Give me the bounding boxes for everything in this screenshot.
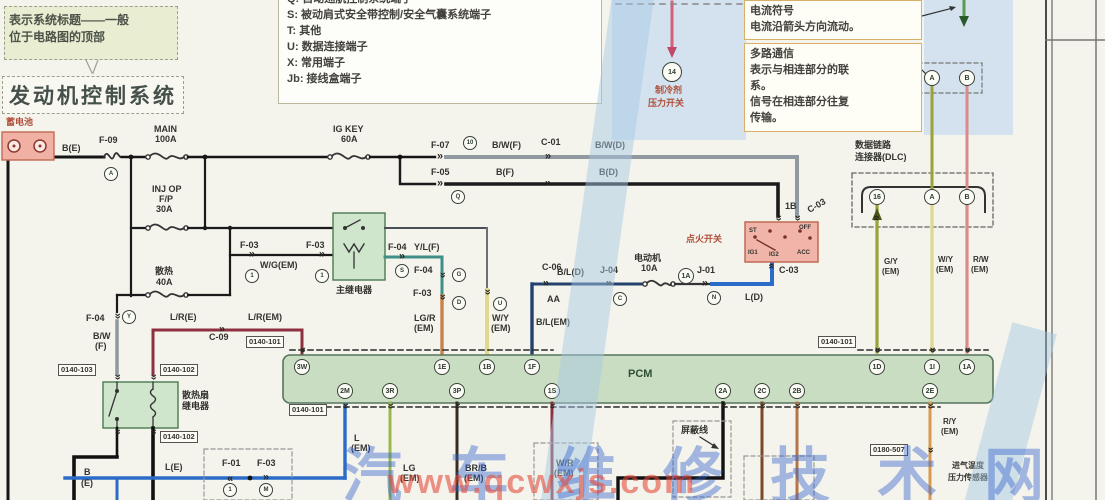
wire-label: F-09	[99, 136, 118, 145]
callout-line: 电流沿箭头方向流动。	[750, 19, 916, 35]
connector-chevron: »	[925, 403, 936, 409]
connector-chevron: »	[872, 215, 883, 221]
connector-chevron: »	[545, 179, 551, 190]
wire-label: L	[354, 434, 360, 443]
wire-label: 压力传感器	[948, 474, 988, 482]
terminal-circle: 1A	[959, 359, 975, 375]
wire-label: (EM)	[971, 266, 988, 274]
wire-label: B(D)	[599, 168, 618, 177]
wire-label: W/R	[556, 459, 574, 468]
wire-label: J-04	[600, 266, 618, 275]
terminal-circle: 1	[315, 269, 329, 283]
legend-line: U: 数据连接端子	[287, 39, 593, 55]
wire-label: B/W	[93, 332, 111, 341]
wire-label: 继电器	[182, 402, 209, 411]
wire-label: AA	[547, 295, 560, 304]
wire-label: (EM)	[554, 469, 574, 478]
terminal-circle: 1	[245, 269, 259, 283]
terminal-circle: 2M	[337, 383, 353, 399]
wire-label: (F)	[95, 342, 107, 351]
wire-label: B/L(EM)	[536, 318, 570, 327]
wire-label: ST	[749, 228, 757, 234]
wire-label: 散热扇	[182, 391, 209, 400]
wire-label: ACC	[797, 250, 810, 256]
terminal-circle: M	[259, 483, 273, 497]
terminal-circle: A	[924, 70, 940, 86]
connector-chevron: »	[249, 250, 255, 261]
connector-chevron: »	[263, 473, 269, 484]
connector-chevron: »	[297, 347, 308, 353]
wire-label: 制冷剂	[655, 86, 682, 95]
wire-label: W/G(EM)	[260, 261, 298, 270]
wire-label: 60A	[341, 135, 358, 144]
wire-label: LG	[403, 464, 416, 473]
callout-system-title-note: 表示系统标题——一般位于电路图的顶部	[4, 6, 178, 60]
terminal-circle: A	[924, 189, 940, 205]
connector-chevron: »	[962, 347, 973, 353]
wire-label: IG1	[748, 250, 758, 256]
callout-line: 电流符号	[750, 3, 916, 19]
terminal-circle: 2B	[789, 383, 805, 399]
terminal-circle: A	[104, 167, 118, 181]
terminal-circle: 1A	[678, 268, 694, 284]
terminal-circle: 10	[463, 136, 477, 150]
wire-label: R/W	[973, 256, 989, 264]
wire-label: B(F)	[496, 168, 514, 177]
wire-label: (EM)	[941, 428, 958, 436]
callout-line: 系。	[750, 78, 916, 94]
callout-line: 多路通信	[750, 46, 916, 62]
connector-chevron: »	[437, 152, 443, 163]
terminal-circle: 2E	[922, 383, 938, 399]
wire-label: IG2	[769, 252, 779, 258]
connector-chevron: »	[545, 152, 551, 163]
wire-label: OFF	[799, 225, 811, 231]
wire-label: (EM)	[936, 266, 953, 274]
connector-chevron: »	[227, 473, 233, 484]
terminal-circle: 16	[869, 189, 885, 205]
wire-label: 40A	[156, 278, 173, 287]
callout-line: 表示系统标题——一般	[9, 12, 173, 29]
connector-chevron: »	[219, 325, 225, 336]
wire-label: 连接器(DLC)	[855, 153, 907, 162]
wire-label: B/W(D)	[595, 141, 625, 150]
wire-label: B/L(D)	[557, 268, 584, 277]
terminal-circle: 1F	[524, 359, 540, 375]
terminal-circle: D	[452, 296, 466, 310]
callout-multiplex: 多路通信表示与相连部分的联系。信号在相连部分往复传输。	[744, 43, 922, 132]
connector-chevron: »	[757, 403, 768, 409]
wire-label: F-04	[414, 266, 433, 275]
connector-chevron: »	[340, 403, 351, 409]
connector-chevron: »	[547, 403, 558, 409]
wire-label: F/P	[159, 195, 173, 204]
connector-chevron: »	[482, 289, 493, 295]
legend-line: S: 被动肩式安全带控制/安全气囊系统端子	[287, 7, 593, 23]
wire-label: (E)	[81, 479, 93, 488]
wire-label: 点火开关	[686, 235, 722, 244]
terminal-circle: 3R	[382, 383, 398, 399]
connector-chevron: »	[792, 403, 803, 409]
connector-chevron: »	[385, 403, 396, 409]
connector-ref-label: 0140-101	[818, 336, 856, 348]
wire-label: 进气温度	[952, 462, 984, 470]
terminal-circle: 1E	[434, 359, 450, 375]
legend-line: Jb: 接线盒端子	[287, 71, 593, 87]
connector-chevron: »	[702, 279, 708, 290]
terminal-circle: 3P	[449, 383, 465, 399]
connector-chevron: »	[437, 272, 448, 278]
terminal-circle: 3W	[294, 359, 310, 375]
wire-label: L(E)	[165, 463, 183, 472]
wire-label: W/Y	[938, 256, 953, 264]
connector-chevron: »	[148, 429, 159, 435]
terminal-circle: B	[959, 70, 975, 86]
terminal-circle: G	[452, 268, 466, 282]
callout-line: 位于电路图的顶部	[9, 29, 173, 46]
wire-label: C-03	[806, 197, 827, 215]
wire-label: B	[84, 468, 91, 477]
wire-label: L/R(EM)	[248, 313, 282, 322]
wire-label: 10A	[641, 264, 658, 273]
wire-label: R/Y	[943, 418, 956, 426]
terminal-circle: Q	[451, 190, 465, 204]
wire-label: C-01	[541, 138, 561, 147]
connector-chevron: »	[773, 215, 784, 221]
connector-ref-label: 0140-102	[160, 431, 198, 443]
connector-chevron: »	[399, 252, 405, 263]
wire-label: BR/B	[465, 464, 487, 473]
wire-label: F-03	[413, 289, 432, 298]
connector-chevron: »	[767, 263, 778, 269]
callout-line: 传输。	[750, 110, 916, 126]
legend-line: Q: 自动巡航控制系统端子	[287, 0, 593, 7]
terminal-circle: 1S	[544, 383, 560, 399]
wire-label: (EM)	[400, 474, 420, 483]
wire-label: B(E)	[62, 144, 81, 153]
wire-label: 1B	[785, 202, 797, 211]
connector-ref-label: 0140-102	[160, 364, 198, 376]
terminal-circle: 2C	[754, 383, 770, 399]
terminal-circle: C	[613, 292, 627, 306]
connector-chevron: »	[872, 347, 883, 353]
wiring-diagram-page: 蓄电池B(E)F-09MAIN100AIG KEY60AINJ OPF/P30A…	[0, 0, 1105, 500]
wire-label: B/W(F)	[492, 141, 521, 150]
wire-label: F-01	[222, 459, 241, 468]
wire-label: IG KEY	[333, 125, 364, 134]
system-title-box: 发动机控制系统	[2, 76, 184, 114]
connector-chevron: »	[112, 313, 123, 319]
wire-label: J-01	[697, 266, 715, 275]
wire-label: INJ OP	[152, 185, 182, 194]
connector-ref-label: 0140-101	[289, 404, 327, 416]
wire-label: (EM)	[464, 474, 484, 483]
terminal-circle: 1I	[924, 359, 940, 375]
terminal-circle: 1	[223, 483, 237, 497]
wire-label: PCM	[628, 369, 652, 380]
wire-label: F-07	[431, 141, 450, 150]
wire-label: (EM)	[351, 444, 371, 453]
wire-label: (EM)	[491, 324, 511, 333]
connector-ref-label: 0140-103	[58, 364, 96, 376]
wire-label: F-05	[431, 168, 450, 177]
wire-label: F-03	[257, 459, 276, 468]
terminal-circle: B	[959, 189, 975, 205]
terminal-circle: 14	[662, 62, 682, 82]
page-title: 发动机控制系统	[9, 80, 177, 110]
terminal-circle: 1D	[869, 359, 885, 375]
connector-chevron: »	[925, 447, 936, 453]
connector-chevron: »	[718, 403, 729, 409]
connector-chevron: »	[437, 294, 448, 300]
wire-label: C-03	[779, 266, 799, 275]
wire-label: 主继电器	[336, 286, 372, 295]
connector-chevron: »	[543, 279, 549, 290]
wire-label: F-04	[86, 314, 105, 323]
connector-chevron: »	[148, 374, 159, 380]
wire-label: 散热	[155, 267, 173, 276]
connector-chevron: »	[112, 374, 123, 380]
wire-label: (EM)	[414, 324, 434, 333]
terminal-circle: N	[707, 291, 721, 305]
callout-line: 信号在相连部分往复	[750, 94, 916, 110]
connector-ref-label: 0140-101	[246, 336, 284, 348]
wire-label: G/Y	[884, 258, 898, 266]
wire-label: 数据链路	[855, 141, 891, 150]
wire-label: 压力开关	[648, 99, 684, 108]
wire-label: Y/L(F)	[414, 243, 440, 252]
connector-chevron: »	[452, 403, 463, 409]
wire-label: L(D)	[745, 293, 763, 302]
terminal-circle: 2A	[715, 383, 731, 399]
connector-chevron: »	[792, 215, 803, 221]
connector-chevron: »	[319, 250, 325, 261]
wire-label: L/R(E)	[170, 313, 197, 322]
callout-current-symbol: 电流符号电流沿箭头方向流动。	[744, 0, 922, 40]
legend-line: X: 常用端子	[287, 55, 593, 71]
wire-label: 屏蔽线	[681, 426, 708, 435]
legend-line: T: 其他	[287, 23, 593, 39]
wire-label: 30A	[156, 205, 173, 214]
terminal-circle: Y	[122, 310, 136, 324]
wire-label: 蓄电池	[6, 118, 33, 127]
wire-label: LG/R	[414, 314, 436, 323]
wire-label: 100A	[155, 135, 177, 144]
connector-ref-label: 0180-507	[870, 444, 908, 456]
connector-chevron: »	[112, 429, 123, 435]
wire-label: (EM)	[882, 268, 899, 276]
connector-chevron: »	[606, 279, 612, 290]
terminal-circle: S	[395, 264, 409, 278]
callout-line: 表示与相连部分的联	[750, 62, 916, 78]
terminal-circle: 1B	[479, 359, 495, 375]
wire-label: W/Y	[492, 314, 509, 323]
wire-label: 电动机	[634, 254, 661, 263]
wire-label: MAIN	[154, 125, 177, 134]
connector-chevron: »	[927, 347, 938, 353]
connector-chevron: »	[437, 179, 443, 190]
terminal-circle: U	[493, 297, 507, 311]
terminal-legend-box: Q: 自动巡航控制系统端子S: 被动肩式安全带控制/安全气囊系统端子T: 其他U…	[278, 0, 602, 104]
